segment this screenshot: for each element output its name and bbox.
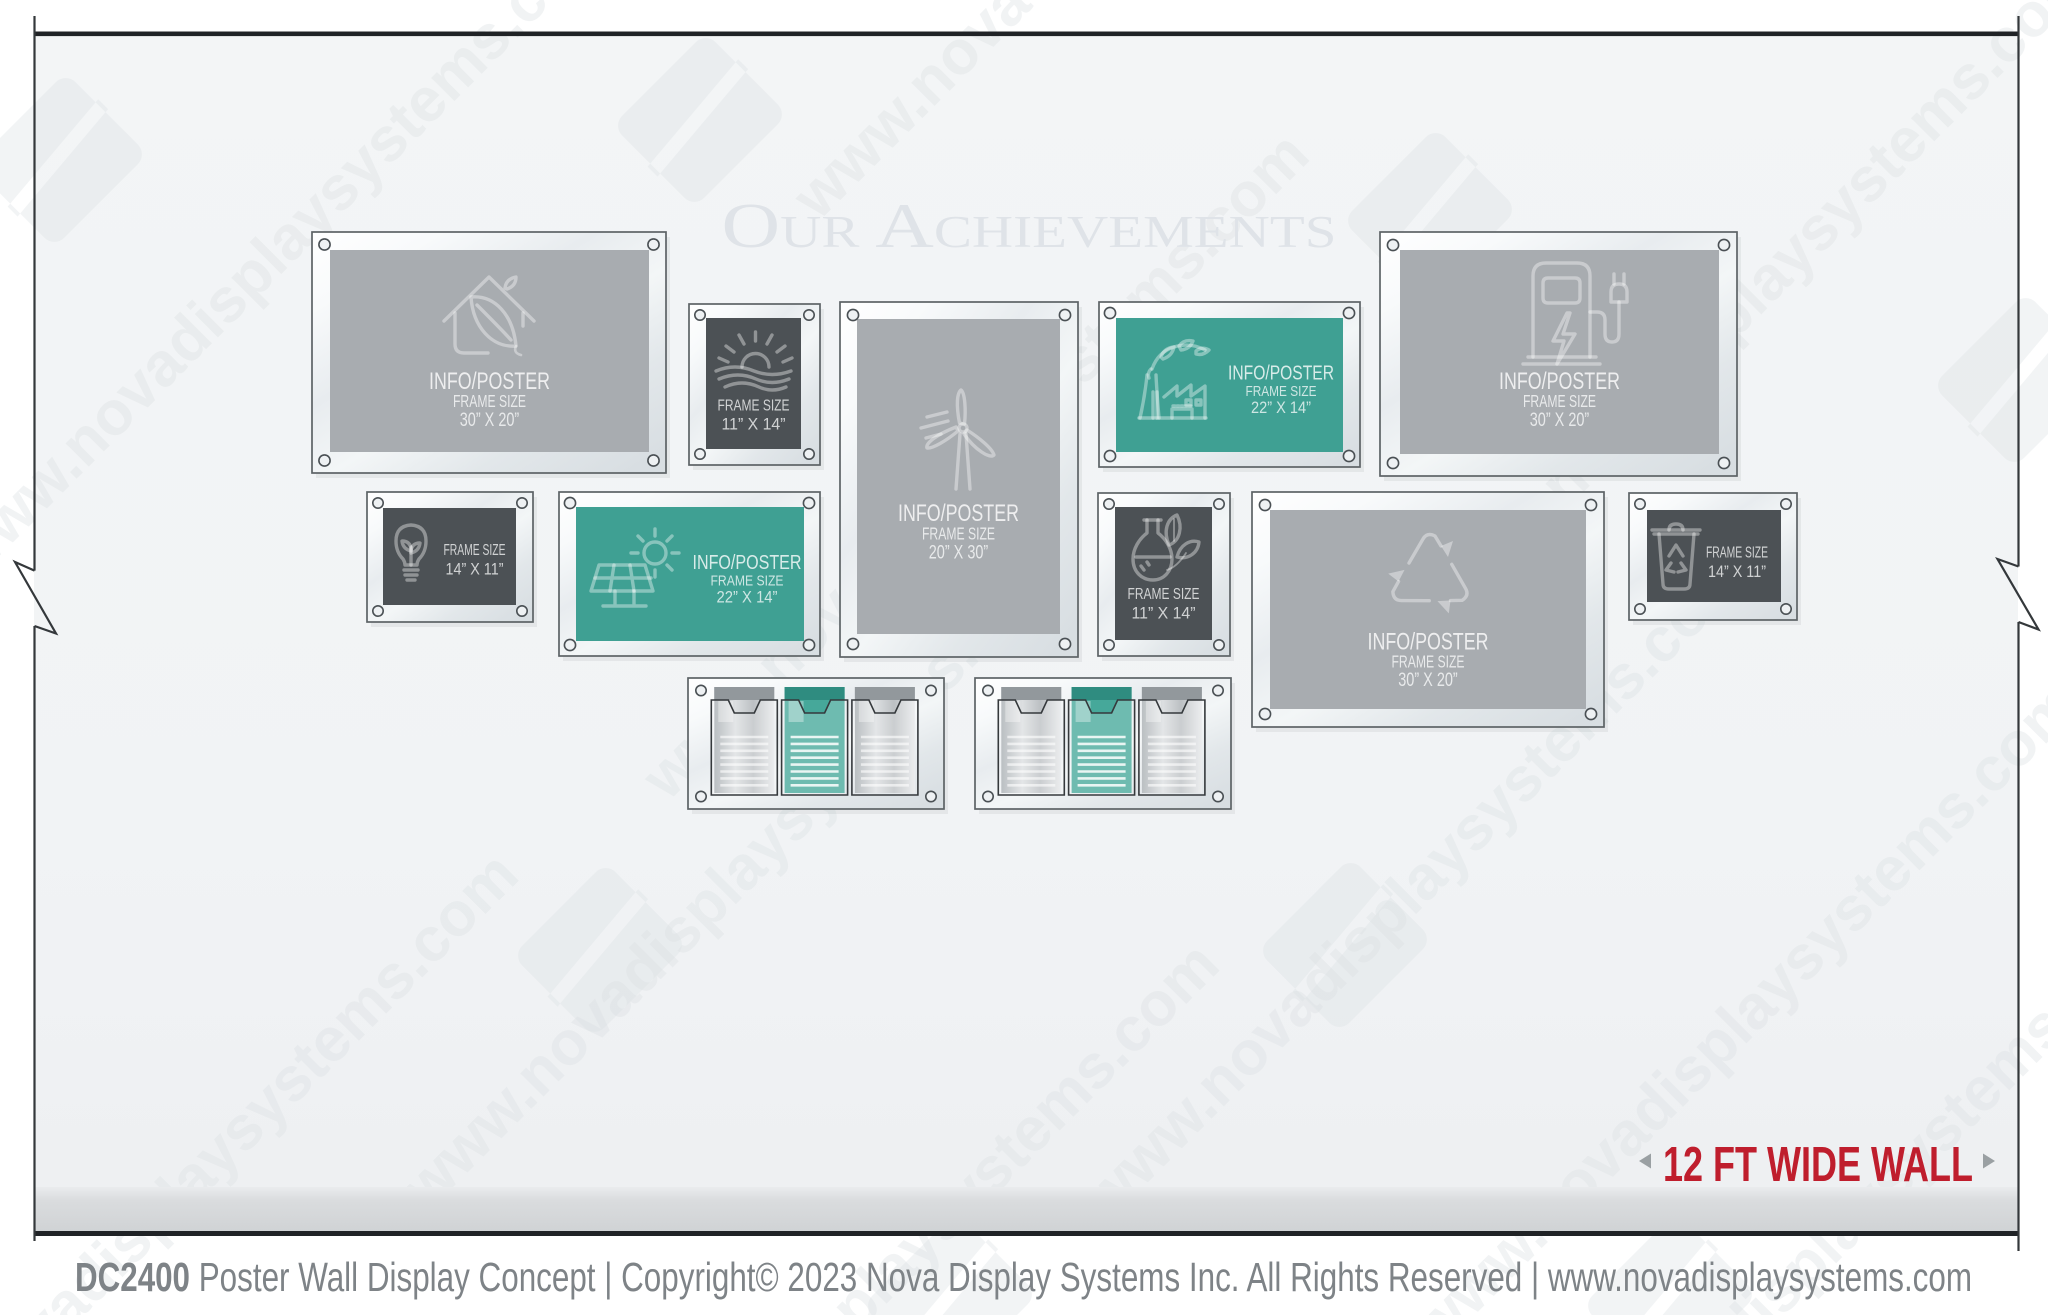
svg-text:DC2400: DC2400 [75, 1254, 190, 1300]
svg-text:INFO/POSTER: INFO/POSTER [1228, 363, 1334, 385]
svg-text:Poster Wall Display Concept |: Poster Wall Display Concept | Copyright©… [190, 1254, 1972, 1300]
svg-text:30” X 20”: 30” X 20” [1530, 410, 1590, 431]
svg-text:11” X 14”: 11” X 14” [1132, 604, 1196, 623]
svg-text:30” X 20”: 30” X 20” [1398, 670, 1458, 691]
svg-text:FRAME SIZE: FRAME SIZE [444, 542, 506, 559]
svg-text:FRAME SIZE: FRAME SIZE [1523, 391, 1596, 411]
svg-text:FRAME SIZE: FRAME SIZE [922, 524, 995, 544]
svg-text:FRAME SIZE: FRAME SIZE [1392, 652, 1465, 672]
svg-text:FRAME SIZE: FRAME SIZE [1128, 586, 1200, 603]
svg-text:22” X 14”: 22” X 14” [1251, 399, 1311, 417]
svg-text:11” X 14”: 11” X 14” [722, 415, 786, 434]
svg-text:INFO/POSTER: INFO/POSTER [693, 552, 802, 574]
svg-text:22” X 14”: 22” X 14” [717, 589, 778, 607]
svg-text:20” X 30”: 20” X 30” [929, 543, 989, 564]
svg-text:FRAME SIZE: FRAME SIZE [453, 391, 526, 411]
svg-text:FRAME SIZE: FRAME SIZE [718, 398, 790, 415]
svg-text:FRAME SIZE: FRAME SIZE [1706, 545, 1768, 562]
svg-text:14” X 11”: 14” X 11” [1708, 562, 1766, 581]
svg-text:12 FT WIDE WALL: 12 FT WIDE WALL [1663, 1138, 1973, 1192]
svg-text:14” X 11”: 14” X 11” [446, 560, 504, 579]
svg-text:Our Achievements: Our Achievements [722, 190, 1337, 261]
svg-text:FRAME SIZE: FRAME SIZE [1246, 383, 1317, 400]
svg-text:FRAME SIZE: FRAME SIZE [711, 573, 784, 590]
svg-text:30” X 20”: 30” X 20” [460, 410, 520, 431]
